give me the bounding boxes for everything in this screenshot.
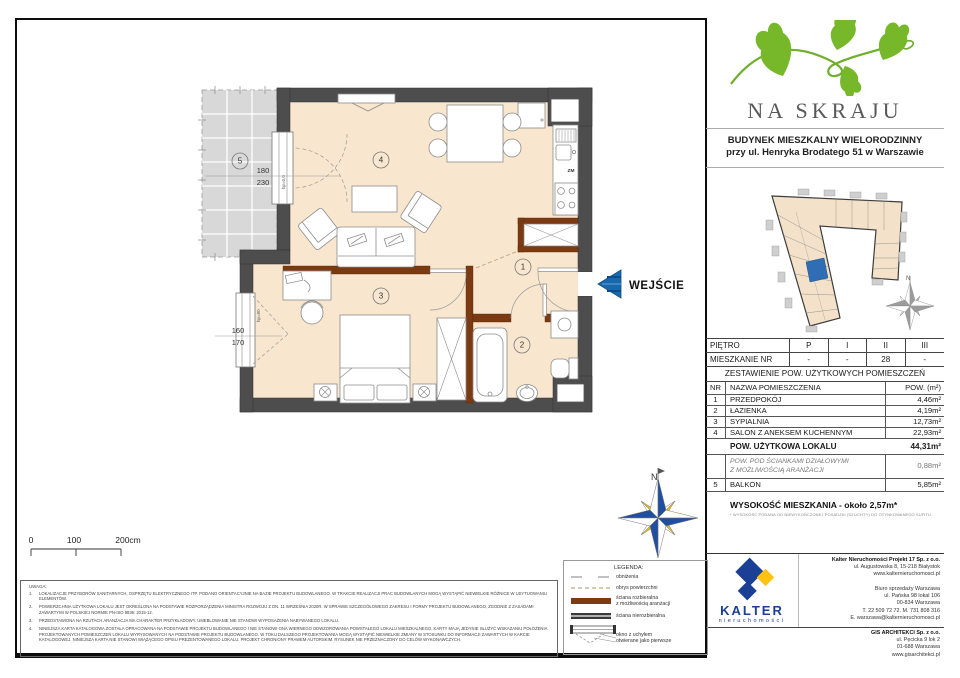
balcony-row: 5 BALKON 5,85m² <box>706 479 944 492</box>
zm-label: ZM <box>568 168 575 174</box>
table-row: 2 ŁAZIENKA 4,19m² <box>706 406 944 417</box>
fridge <box>518 103 545 128</box>
table-row: 3 SYPIALNIA 12,73m² <box>706 417 944 428</box>
svg-text:N: N <box>906 276 910 282</box>
entrance-arrow: WEJŚCIE <box>598 270 684 298</box>
project-name: NA SKRAJU <box>706 98 944 124</box>
note-item: 1. LOKALIZACJE PRZYBORÓW SANITARNYCH, OS… <box>29 591 549 602</box>
legend-item: okno z uchyłem otwierane jako pierwsze <box>570 624 702 646</box>
dim-bedroom-h: 170 <box>232 338 245 347</box>
catalog-card-page: { "header": { "project_name": "NA SKRAJU… <box>0 0 960 678</box>
note-item: 2. POWIERZCHNIA UŻYTKOWA LOKALU JEST OKR… <box>29 604 549 615</box>
dim-balcony-h: 230 <box>257 178 270 187</box>
ivy-leaves <box>752 20 914 96</box>
notes-title: UWAGA: <box>29 584 549 590</box>
legend-item: obniżenia <box>570 574 702 580</box>
building-title: BUDYNEK MIESZKALNY WIELORODZINNY przy ul… <box>706 129 944 168</box>
chair <box>503 113 521 131</box>
lowering-symbol <box>570 574 612 580</box>
footer-divider-horizontal <box>706 627 944 628</box>
total-area-row: POW. UŻYTKOWA LOKALU 44,31m² <box>706 439 944 455</box>
washing-machine <box>551 311 578 338</box>
sofa <box>337 227 415 267</box>
svg-text:1: 1 <box>521 263 526 272</box>
ivy-logo <box>725 20 925 96</box>
tilt-window-symbol <box>570 624 616 646</box>
entrance-label: WEJŚCIE <box>629 279 684 292</box>
pillow <box>377 385 407 400</box>
hall-wardrobe <box>524 224 578 246</box>
chair <box>429 113 447 131</box>
compass-rose: N <box>618 468 698 558</box>
compass-n-label: N <box>651 472 658 482</box>
table-row: 4 SALON Z ANEKSEM KUCHENNYM 22,93m² <box>706 428 944 439</box>
scale-bar: 0 100 200cm <box>29 535 141 556</box>
toilet <box>551 358 578 379</box>
chair <box>503 139 521 157</box>
legend-item: ściana rozbieralna z możliwością aranżac… <box>570 595 702 607</box>
legend-item: obrys powierzchni <box>570 585 702 591</box>
svg-text:5: 5 <box>238 157 243 166</box>
scale-200: 200cm <box>115 535 141 545</box>
areas-table: NR NAZWA POMIESZCZENIA POW. (m²) 1 PRZED… <box>706 382 944 492</box>
company-1: Kalter Nieruchomości Projekt 17 Sp. z o.… <box>832 557 940 579</box>
height-footnote: * WYSOKOŚĆ PODANA OD NIEWYKOŃCZONEJ POSA… <box>730 512 938 517</box>
bedroom-wardrobe <box>437 318 466 400</box>
removable-wall-symbol <box>570 597 612 605</box>
svg-text:4: 4 <box>379 156 384 165</box>
kalter-logo-cell: KALTER nieruchomości <box>706 556 798 628</box>
dining-table <box>447 105 503 162</box>
building-line1: BUDYNEK MIESZKALNY WIELORODZINNY <box>706 135 944 147</box>
siteplan-compass: N <box>886 276 934 330</box>
project-logo-box: NA SKRAJU <box>706 20 944 129</box>
coffee-table <box>352 186 397 212</box>
areas-table-title: ZESTAWIENIE POW. UŻYTKOWYCH POMIESZCZEŃ <box>706 366 944 382</box>
kalter-sub: nieruchomości <box>719 618 786 624</box>
pillow <box>344 385 374 400</box>
table-row: 1 PRZEDPOKÓJ 4,46m² <box>706 395 944 406</box>
faucet <box>572 150 575 153</box>
notes-box: UWAGA: 1. LOKALIZACJE PRZYBORÓW SANITARN… <box>20 580 558 657</box>
scale-100: 100 <box>67 535 81 545</box>
svg-text:2: 2 <box>520 341 525 350</box>
highlighted-unit <box>806 258 828 282</box>
areas-header-row: NR NAZWA POMIESZCZENIA POW. (m²) <box>706 382 944 395</box>
legend-title: LEGENDA: <box>570 565 702 571</box>
siteplan-svg: N <box>706 168 944 338</box>
floor-table: PIĘTRO P I II III MIESZKANIE NR - - 28 - <box>706 338 944 367</box>
lamp-symbol <box>320 387 331 398</box>
structural-wall-symbol <box>570 612 612 620</box>
svg-text:3: 3 <box>379 292 384 301</box>
height-note: WYSOKOŚĆ MIESZKANIA - około 2,57m* * WYS… <box>706 492 944 552</box>
apartment-row-label: MIESZKANIE NR <box>706 353 790 366</box>
sink <box>556 145 571 160</box>
stove <box>555 183 578 215</box>
entrance-opening <box>578 272 592 296</box>
note-item: 3. PRZEDSTAWIONA NA RZUTACH ARANŻACJA MA… <box>29 618 549 624</box>
lamp-symbol <box>419 387 430 398</box>
legend-box: LEGENDA: obniżenia obrys powierzchni ści… <box>563 560 708 655</box>
footer-divider-vertical <box>798 554 799 627</box>
hp-bedroom: hp=80 <box>256 309 261 322</box>
note-item: 4. NINIEJSZA KARTA KATALOGOWA ZOSTAŁA OP… <box>29 626 549 643</box>
siteplan-box: N <box>706 168 944 338</box>
dim-balcony-w: 180 <box>257 166 270 175</box>
building-line2: przy ul. Henryka Brodatego 51 w Warszawi… <box>706 147 944 159</box>
scale-0: 0 <box>29 535 34 545</box>
desk-chair <box>301 302 323 324</box>
dim-bedroom-w: 160 <box>232 326 245 335</box>
washbasin <box>517 385 538 402</box>
floor-row: PIĘTRO P I II III <box>706 339 944 353</box>
legend-item: ściana nierozbieralna <box>570 612 702 620</box>
company-2: Biuro sprzedaży Warszawa ul. Pańska 98 l… <box>850 586 940 622</box>
partition-area-row: POW. POD ŚCIANKAMI DZIAŁOWYMI Z MOŻLIWOŚ… <box>706 455 944 479</box>
hp-balcony: hp=0,0 <box>281 175 286 189</box>
height-label: WYSOKOŚĆ MIESZKANIA - około 2,57m* <box>730 500 938 510</box>
surface-outline-symbol <box>570 585 612 591</box>
floor-row-label: PIĘTRO <box>706 339 790 352</box>
apartment-row: MIESZKANIE NR - - 28 - <box>706 353 944 367</box>
company-3: GIS ARCHITEKCI Sp. z o.o. ul. Pęcicka 9 … <box>871 630 940 659</box>
chair <box>429 139 447 157</box>
tv <box>338 94 395 103</box>
kalter-name: KALTER <box>720 603 784 618</box>
kalter-logo <box>723 556 781 602</box>
vine-stem <box>731 42 903 84</box>
